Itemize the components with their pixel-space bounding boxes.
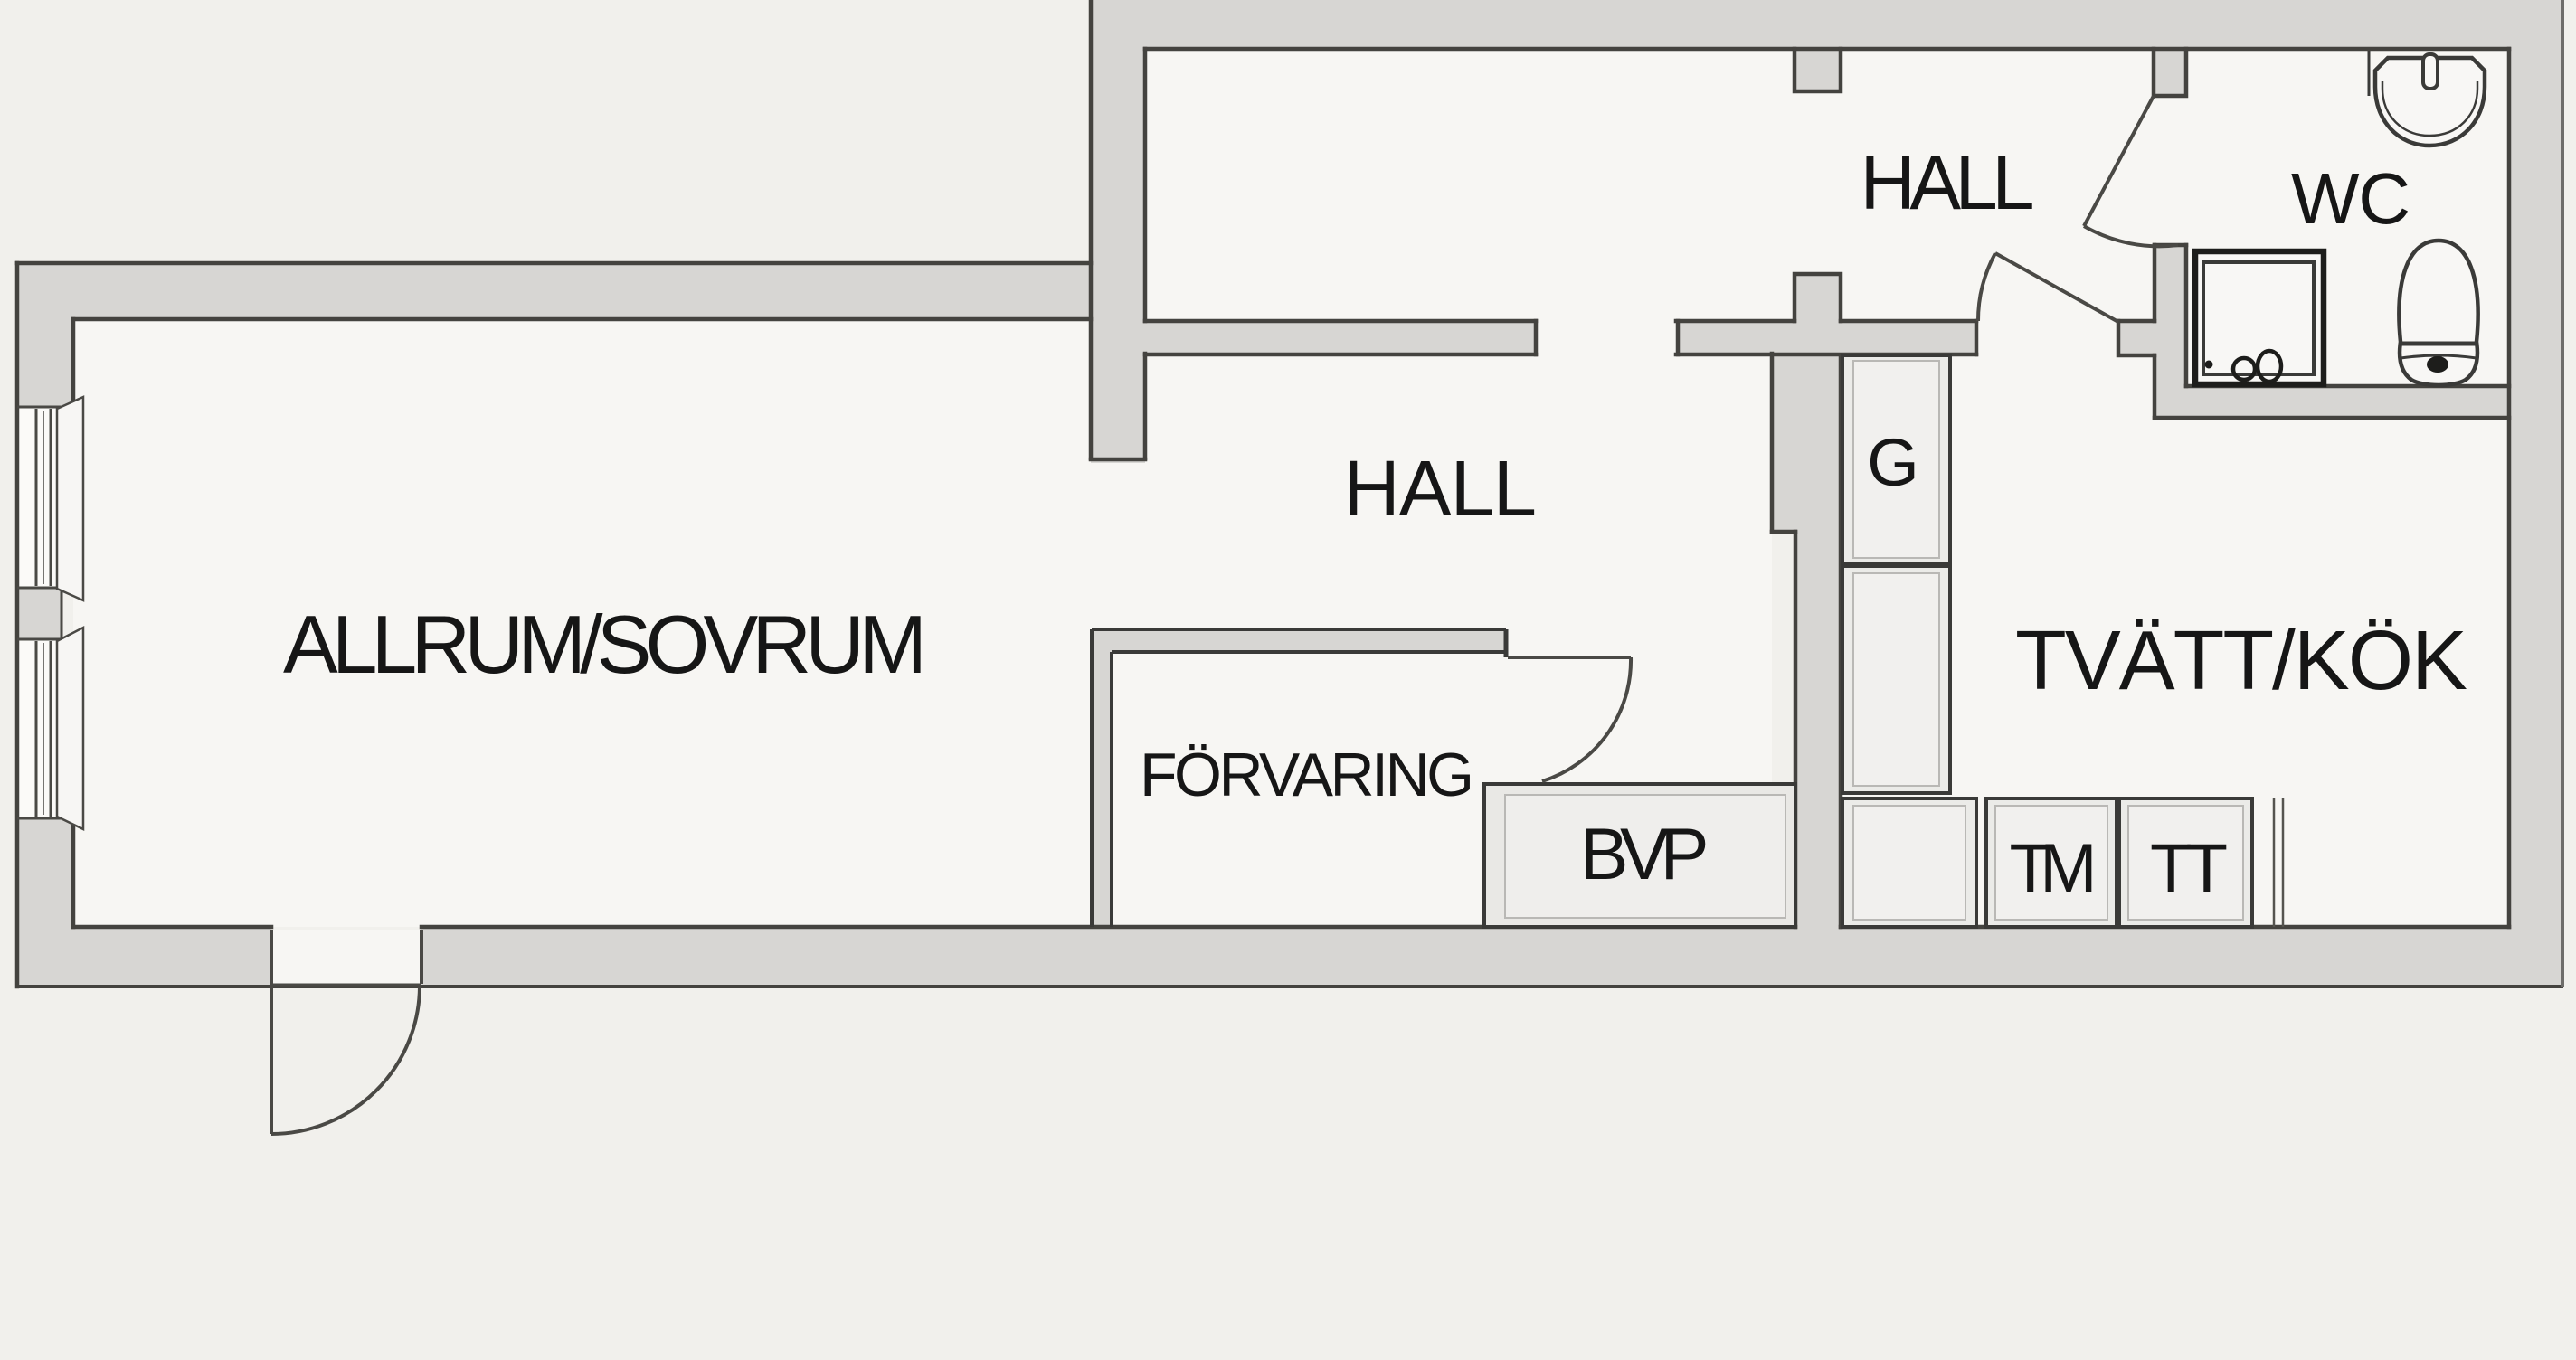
svg-text:ALLRUM/SOVRUM: ALLRUM/SOVRUM xyxy=(283,600,927,691)
svg-text:TM: TM xyxy=(2010,830,2098,907)
svg-text:BVP: BVP xyxy=(1580,814,1709,895)
svg-text:TVÄTT/KÖK: TVÄTT/KÖK xyxy=(2015,613,2467,707)
svg-text:HALL: HALL xyxy=(1343,445,1537,533)
svg-text:FÖRVARING: FÖRVARING xyxy=(1140,741,1474,809)
svg-text:HALL: HALL xyxy=(1861,140,2035,226)
svg-text:TT: TT xyxy=(2150,830,2228,907)
svg-text:WC: WC xyxy=(2291,158,2410,239)
svg-text:G: G xyxy=(1867,425,1919,500)
